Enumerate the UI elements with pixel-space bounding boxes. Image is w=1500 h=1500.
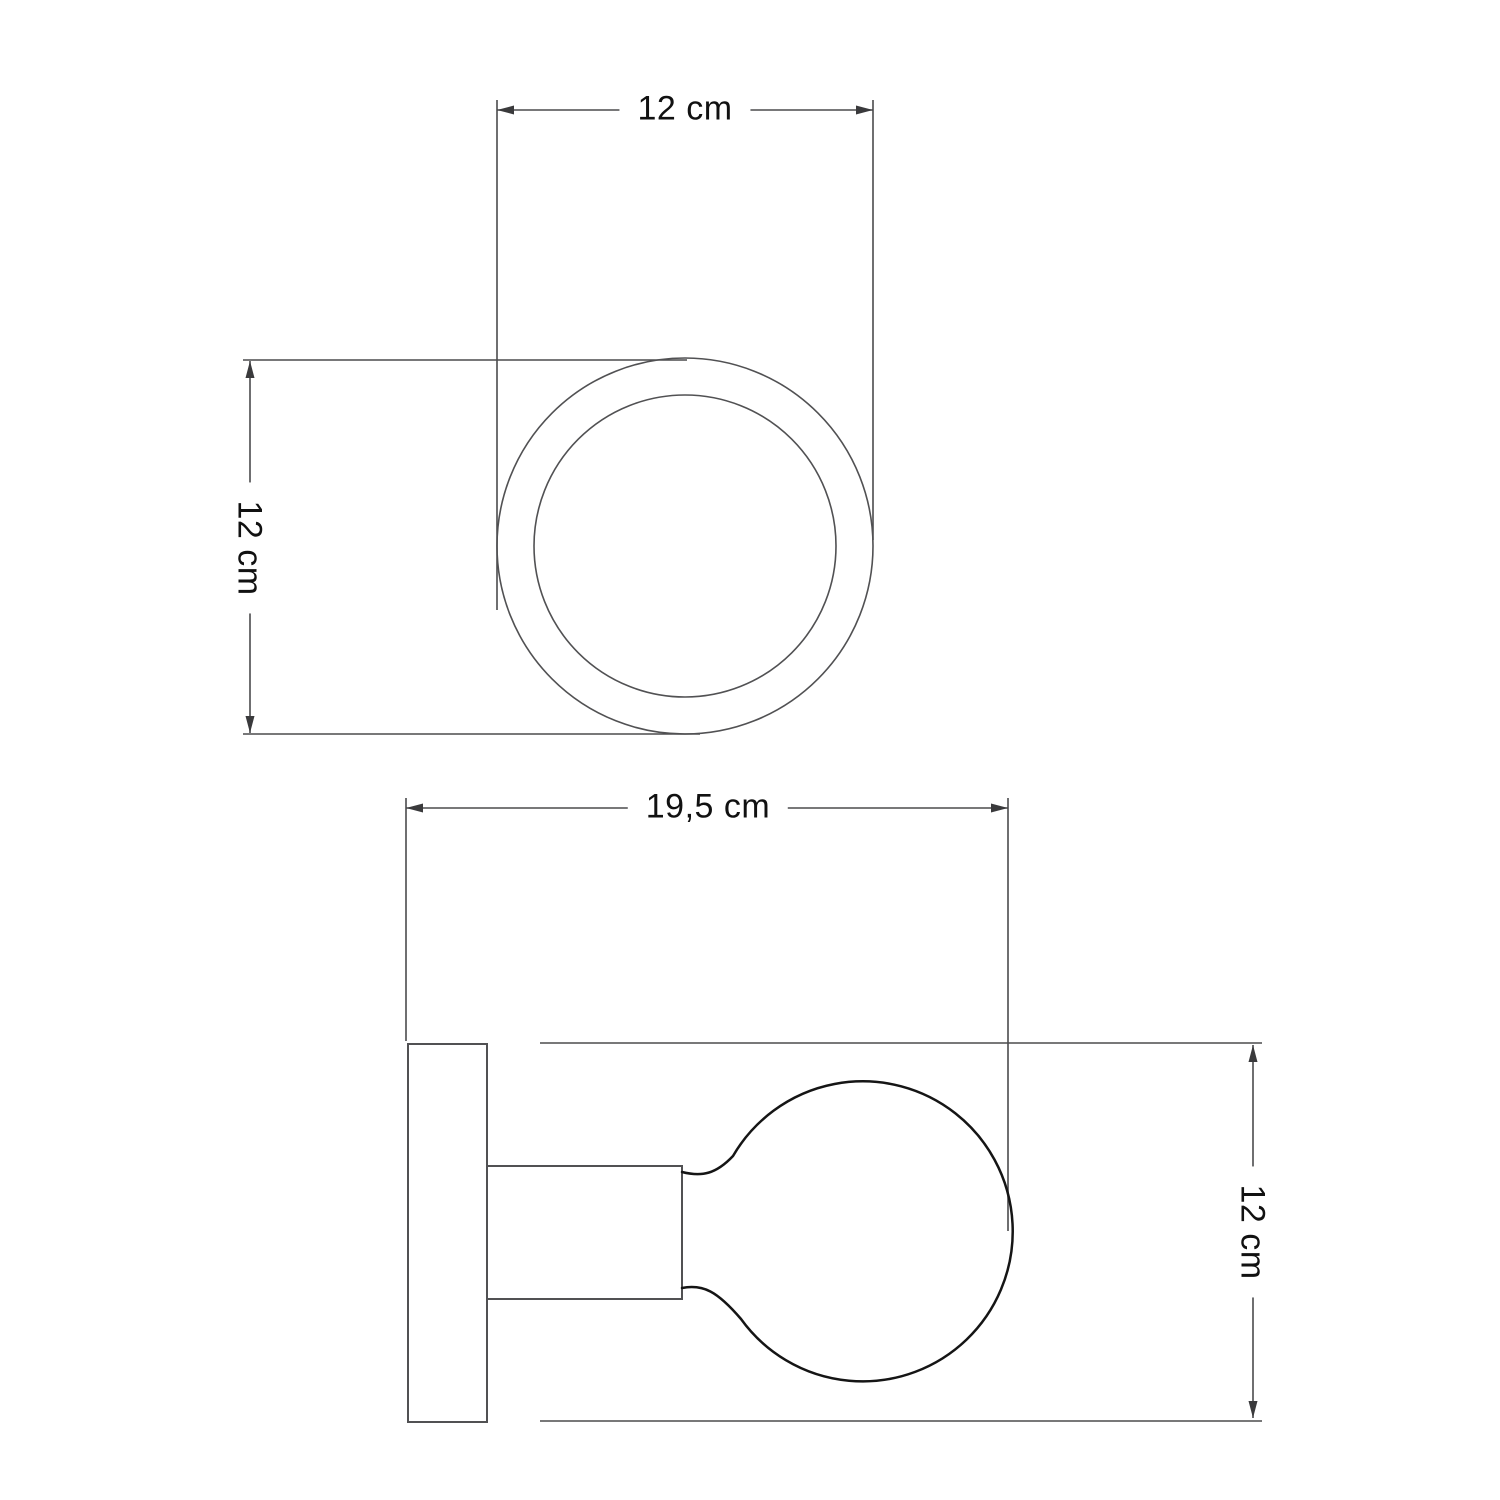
top-view-width-label: 12 cm <box>619 87 750 130</box>
top-view-inner-circle <box>534 395 836 697</box>
arrow-down-icon <box>246 716 255 733</box>
arrow-down-icon <box>1249 1401 1258 1418</box>
lamp-holder-stem <box>487 1166 682 1299</box>
arrow-right-icon <box>856 106 873 115</box>
arrow-left-icon <box>406 804 423 813</box>
arrow-up-icon <box>1249 1045 1258 1062</box>
bulb-outline <box>682 1081 1013 1381</box>
top-view-height-label: 12 cm <box>227 482 270 613</box>
wall-plate <box>408 1044 487 1422</box>
arrow-up-icon <box>246 361 255 378</box>
top-view <box>243 100 873 734</box>
technical-drawing-canvas: 12 cm 12 cm 19,5 cm 12 cm <box>0 0 1500 1500</box>
top-view-outer-circle <box>497 358 873 734</box>
arrow-right-icon <box>991 804 1008 813</box>
side-view-width-label: 19,5 cm <box>628 785 788 828</box>
technical-drawing-svg <box>0 0 1500 1500</box>
side-view-height-label: 12 cm <box>1230 1166 1273 1297</box>
arrow-left-icon <box>497 106 514 115</box>
side-view <box>406 798 1262 1422</box>
